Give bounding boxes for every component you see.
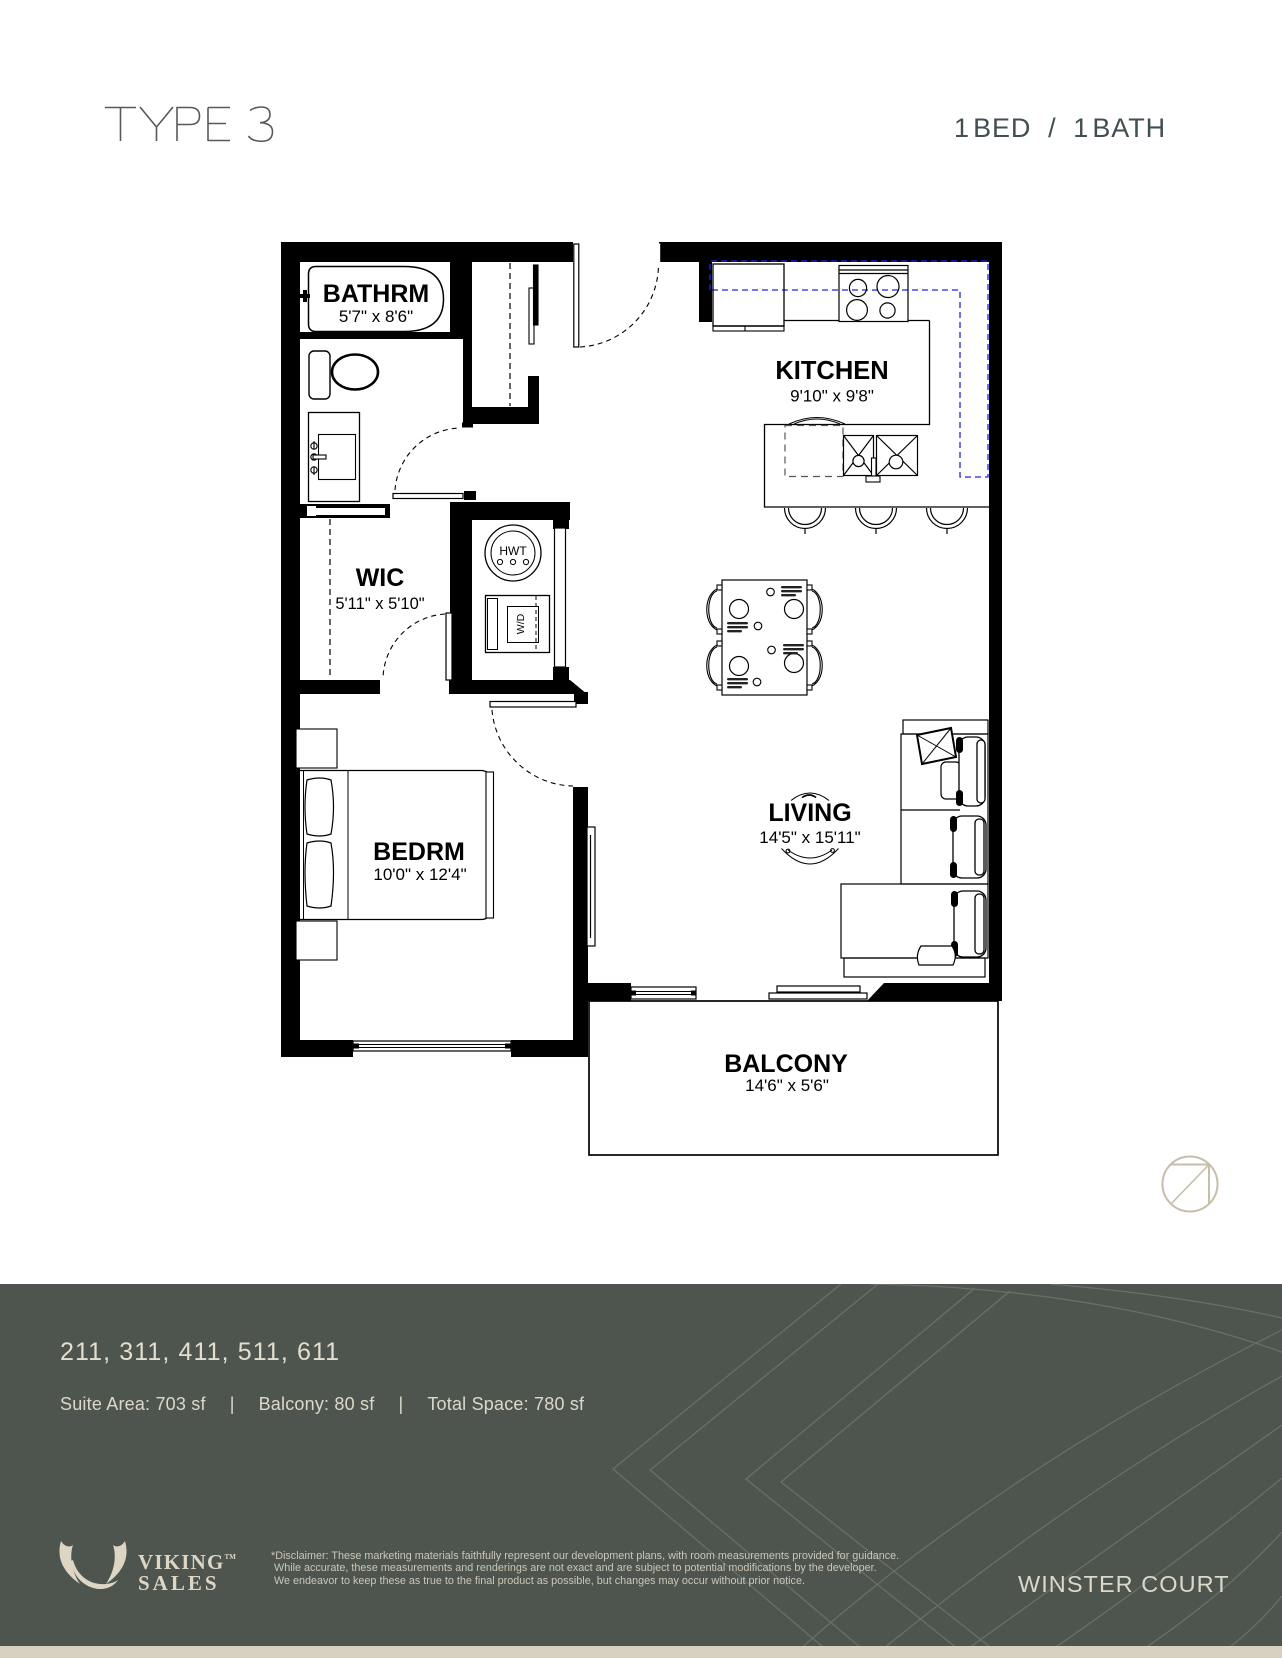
svg-text:W/D: W/D (515, 613, 527, 634)
svg-text:KITCHEN: KITCHEN (775, 357, 888, 385)
svg-text:5'11" x 5'10": 5'11" x 5'10" (335, 595, 424, 613)
svg-text:BALCONY: BALCONY (724, 1050, 848, 1078)
svg-text:HWT: HWT (499, 544, 527, 558)
svg-text:BATHRM: BATHRM (323, 280, 429, 308)
svg-text:14'6" x 5'6": 14'6" x 5'6" (745, 1076, 829, 1095)
svg-text:14'5" x 15'11": 14'5" x 15'11" (759, 828, 860, 847)
svg-text:BEDRM: BEDRM (373, 838, 465, 866)
svg-text:10'0" x 12'4": 10'0" x 12'4" (373, 865, 466, 884)
svg-text:9'10" x 9'8": 9'10" x 9'8" (790, 387, 874, 406)
svg-text:5'7" x 8'6": 5'7" x 8'6" (339, 307, 413, 326)
svg-text:WIC: WIC (356, 564, 405, 592)
svg-text:LIVING: LIVING (768, 799, 851, 827)
